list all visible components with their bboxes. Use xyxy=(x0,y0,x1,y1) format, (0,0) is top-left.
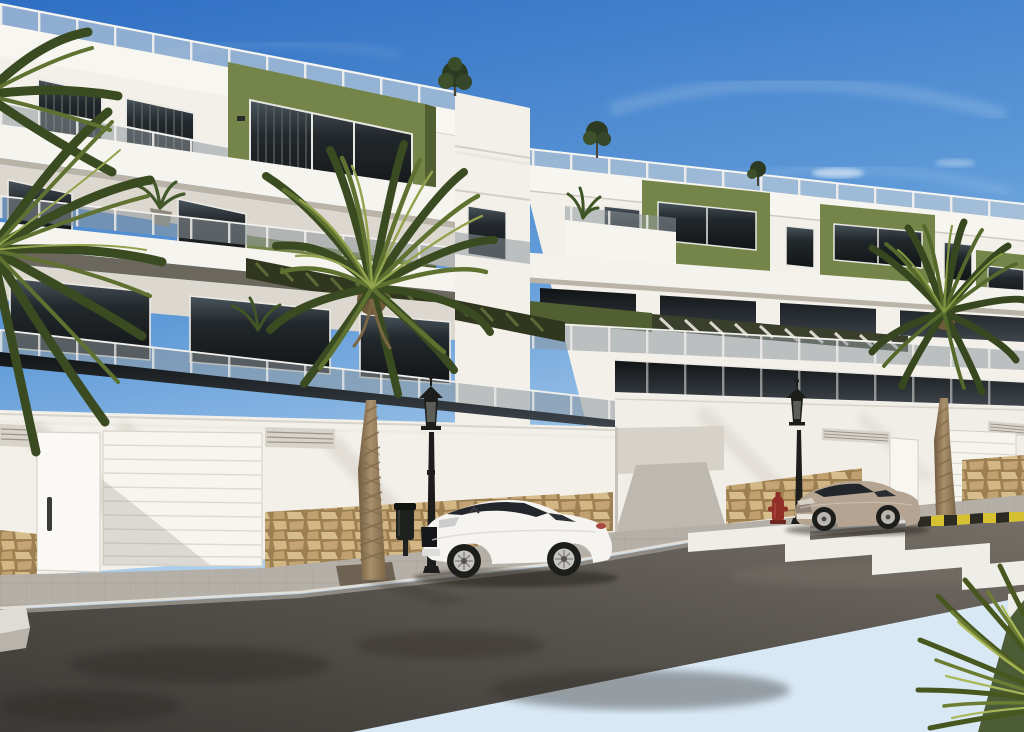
rendered-photo xyxy=(0,0,1024,732)
car-shadow xyxy=(414,569,618,587)
window xyxy=(786,226,814,268)
road-stain xyxy=(0,690,180,722)
road-stain xyxy=(355,631,545,659)
cloud xyxy=(935,159,975,167)
garage-door xyxy=(103,431,262,566)
road-stain xyxy=(490,670,790,710)
lantern-glass xyxy=(793,401,801,419)
door-handle xyxy=(47,497,52,531)
vent-grille xyxy=(0,424,30,447)
wall-lamp xyxy=(237,116,245,121)
lantern-glass xyxy=(426,402,436,422)
licence-plate xyxy=(422,549,440,556)
licence-plate xyxy=(797,514,813,519)
vent-grille xyxy=(265,427,335,449)
car-grille xyxy=(421,527,437,547)
road-stain xyxy=(70,647,330,683)
car-taillight xyxy=(596,523,606,529)
pedestrian-door xyxy=(37,432,100,572)
cloud xyxy=(812,168,864,178)
